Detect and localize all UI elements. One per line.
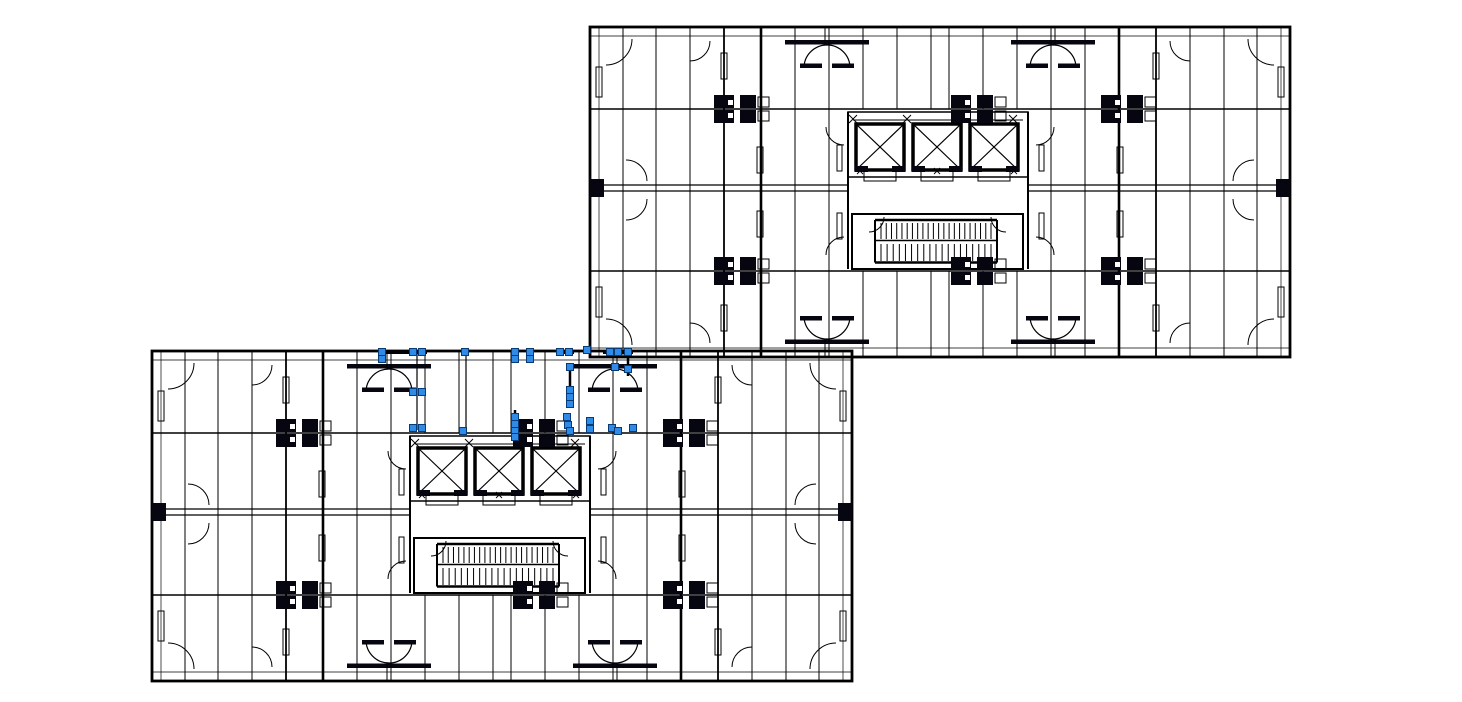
service-fixture [995, 273, 1006, 283]
service-block-notch [965, 275, 970, 280]
selection-grip[interactable] [512, 434, 519, 441]
door-swing-arc [626, 160, 647, 181]
outer-wall [590, 27, 1290, 357]
cad-canvas[interactable] [0, 0, 1462, 702]
selection-grip[interactable] [410, 425, 417, 432]
selection-grip[interactable] [566, 349, 573, 356]
selection-grip[interactable] [512, 414, 519, 421]
selection-grip[interactable] [630, 425, 637, 432]
door-jamb [837, 213, 842, 239]
service-block-notch [677, 599, 682, 604]
service-fixture [557, 597, 568, 607]
service-block [689, 581, 705, 594]
entry-threshold [394, 640, 416, 645]
service-block [302, 434, 318, 447]
door-swing-arc [795, 523, 816, 544]
door-swing-arc [188, 523, 209, 544]
service-fixture [707, 435, 718, 445]
service-fixture [1145, 97, 1156, 107]
selection-grip[interactable] [567, 394, 574, 401]
service-block-notch [728, 113, 733, 118]
entry-lintel [347, 664, 431, 669]
entry-threshold [620, 640, 642, 645]
wall-end-block [838, 503, 852, 521]
service-fixture [707, 583, 718, 593]
service-fixture [758, 111, 769, 121]
selection-grip[interactable] [564, 414, 571, 421]
entry-threshold [800, 64, 822, 69]
door-jamb [399, 469, 404, 495]
floor-plan-lower-left[interactable] [152, 351, 852, 681]
selection-overlay [379, 347, 637, 441]
service-block-notch [965, 113, 970, 118]
service-fixture [1145, 273, 1156, 283]
entry-threshold [800, 316, 822, 321]
service-block [302, 596, 318, 609]
selection-grip[interactable] [527, 356, 534, 363]
service-block-notch [290, 437, 295, 442]
service-block-notch [527, 424, 532, 429]
service-block [1127, 95, 1143, 108]
service-block [539, 581, 555, 594]
selection-grip[interactable] [587, 426, 594, 433]
entry-lintel [785, 340, 869, 345]
entry-threshold [588, 640, 610, 645]
door-jamb [601, 537, 606, 563]
door-swing-arc [810, 363, 836, 389]
door-swing-arc [1248, 319, 1274, 345]
door-swing-arc [810, 643, 836, 669]
entry-threshold [832, 316, 854, 321]
entry-threshold [1058, 64, 1080, 69]
service-block [689, 596, 705, 609]
entry-lintel [1011, 40, 1095, 45]
service-block-notch [965, 262, 970, 267]
door-jamb [1039, 145, 1044, 171]
selection-grip[interactable] [587, 418, 594, 425]
entry-threshold [1058, 316, 1080, 321]
service-block [302, 419, 318, 432]
selection-grip[interactable] [462, 349, 469, 356]
door-swing-arc [1170, 41, 1190, 61]
service-block [689, 434, 705, 447]
entry-threshold [1026, 316, 1048, 321]
elevator-door [864, 171, 896, 181]
selection-grip[interactable] [419, 349, 426, 356]
service-block [539, 596, 555, 609]
wall-end-block [590, 179, 604, 197]
elevator-door [426, 495, 458, 505]
wall-end-block [152, 503, 166, 521]
service-block [1127, 110, 1143, 123]
door-jamb [399, 537, 404, 563]
service-block-notch [677, 586, 682, 591]
selection-grip[interactable] [410, 389, 417, 396]
selection-grip[interactable] [584, 347, 591, 354]
selection-grip[interactable] [612, 364, 619, 371]
service-block-notch [1115, 113, 1120, 118]
service-fixture [1145, 259, 1156, 269]
entry-threshold [1026, 64, 1048, 69]
door-swing-arc [252, 365, 272, 385]
elevator-door [483, 495, 515, 505]
service-block-notch [728, 262, 733, 267]
service-block [977, 257, 993, 270]
selection-grip[interactable] [625, 366, 632, 373]
floor-plan-upper-right[interactable] [590, 27, 1290, 357]
door-swing-arc [690, 323, 710, 343]
selection-grip[interactable] [527, 349, 534, 356]
entry-lintel [785, 40, 869, 45]
service-block [740, 110, 756, 123]
service-block-notch [290, 599, 295, 604]
service-block-notch [527, 586, 532, 591]
service-block [977, 95, 993, 108]
selection-grip[interactable] [419, 425, 426, 432]
service-block [689, 419, 705, 432]
door-jamb [601, 469, 606, 495]
door-swing-arc [732, 365, 752, 385]
service-block [740, 257, 756, 270]
outer-wall [152, 351, 852, 681]
selection-grip[interactable] [512, 421, 519, 428]
selection-grip[interactable] [460, 428, 467, 435]
door-jamb [1039, 213, 1044, 239]
service-fixture [320, 583, 331, 593]
door-jamb [837, 145, 842, 171]
selection-grip[interactable] [512, 356, 519, 363]
door-swing-arc [188, 484, 209, 505]
door-swing-arc [690, 41, 710, 61]
entry-lintel [347, 364, 431, 369]
door-swing-arc [1233, 199, 1254, 220]
service-block-notch [527, 599, 532, 604]
service-block [1127, 257, 1143, 270]
selection-grip[interactable] [567, 428, 574, 435]
service-block-notch [728, 275, 733, 280]
service-fixture [707, 597, 718, 607]
door-swing-arc [1170, 323, 1190, 343]
service-fixture [995, 97, 1006, 107]
door-swing-arc [1248, 39, 1274, 65]
door-swing-arc [626, 199, 647, 220]
service-block-notch [527, 437, 532, 442]
selection-grip[interactable] [625, 349, 632, 356]
selection-grip[interactable] [615, 428, 622, 435]
elevator-bank [848, 112, 1028, 177]
service-block-notch [728, 100, 733, 105]
entry-threshold [362, 388, 384, 393]
selection-grip[interactable] [557, 349, 564, 356]
door-swing-arc [1233, 160, 1254, 181]
selection-grip[interactable] [567, 387, 574, 394]
service-block [539, 434, 555, 447]
drawing-surface[interactable] [0, 0, 1462, 702]
selection-grip[interactable] [567, 364, 574, 371]
service-fixture [758, 97, 769, 107]
service-fixture [707, 421, 718, 431]
entry-lintel [1011, 340, 1095, 345]
service-block [539, 419, 555, 432]
selection-grip[interactable] [607, 349, 614, 356]
door-swing-arc [732, 647, 752, 667]
door-swing-arc [168, 643, 194, 669]
service-block [977, 272, 993, 285]
selection-grip[interactable] [419, 389, 426, 396]
service-block-notch [1115, 100, 1120, 105]
door-swing-arc [606, 319, 632, 345]
service-block-notch [290, 586, 295, 591]
service-fixture [320, 421, 331, 431]
entry-threshold [588, 388, 610, 393]
door-swing-arc [606, 39, 632, 65]
service-fixture [758, 259, 769, 269]
door-swing-arc [795, 484, 816, 505]
service-block [740, 272, 756, 285]
wall-end-block [1276, 179, 1290, 197]
service-block-notch [677, 424, 682, 429]
door-swing-arc [252, 647, 272, 667]
service-fixture [320, 597, 331, 607]
service-block [977, 110, 993, 123]
service-block [302, 581, 318, 594]
entry-lintel [573, 664, 657, 669]
elevator-door [921, 171, 953, 181]
service-block-notch [290, 424, 295, 429]
elevator-door [978, 171, 1010, 181]
entry-threshold [832, 64, 854, 69]
service-block-notch [677, 437, 682, 442]
service-block-notch [1115, 275, 1120, 280]
selection-grip[interactable] [379, 349, 386, 356]
service-fixture [758, 273, 769, 283]
entry-threshold [362, 640, 384, 645]
service-fixture [320, 435, 331, 445]
selection-grip[interactable] [615, 349, 622, 356]
selection-grip[interactable] [410, 349, 417, 356]
service-block [740, 95, 756, 108]
service-block-notch [965, 100, 970, 105]
selection-grip[interactable] [379, 356, 386, 363]
elevator-bank [410, 436, 590, 501]
selection-grip[interactable] [512, 349, 519, 356]
service-block-notch [1115, 262, 1120, 267]
selection-grip[interactable] [567, 401, 574, 408]
elevator-door [540, 495, 572, 505]
service-fixture [1145, 111, 1156, 121]
door-swing-arc [168, 363, 194, 389]
service-block [1127, 272, 1143, 285]
entry-threshold [620, 388, 642, 393]
